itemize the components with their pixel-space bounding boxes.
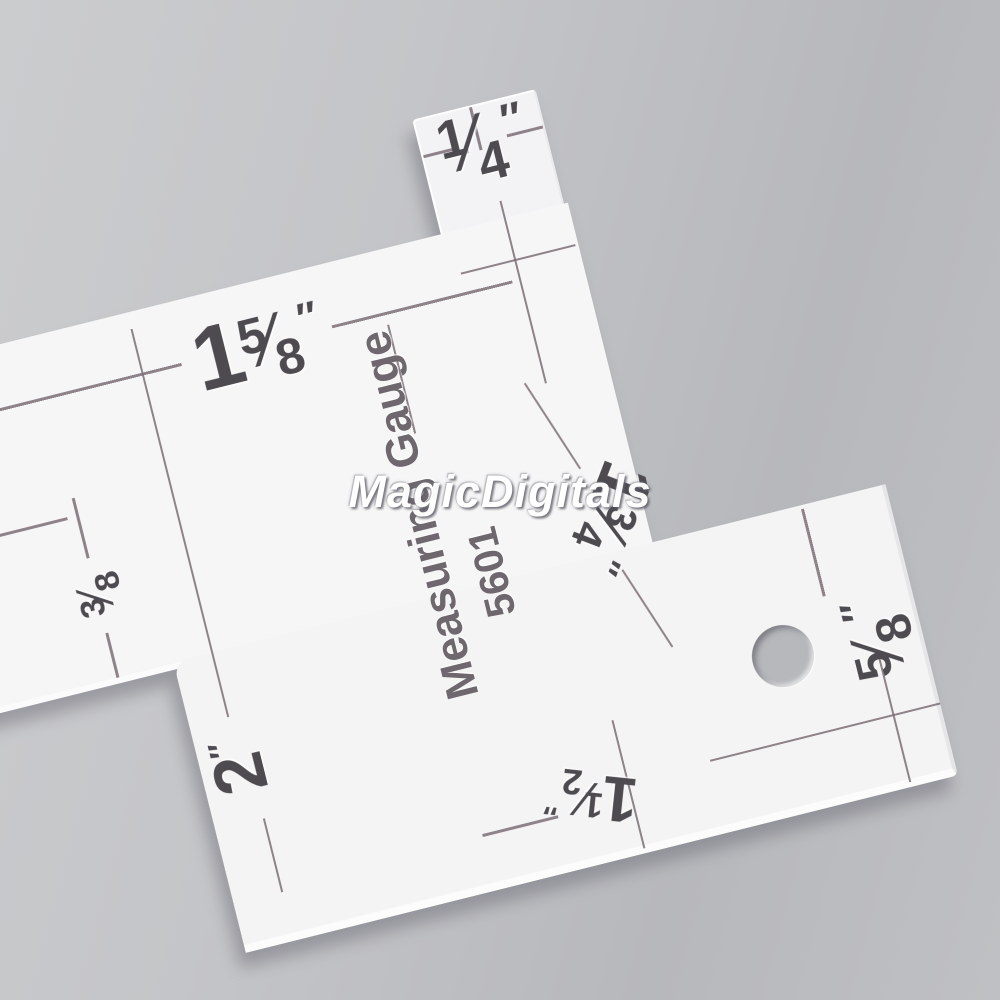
watermark-text: MagicDigitals [348, 466, 651, 518]
mark-one-and-half-inch: 11⁄2″ [542, 760, 641, 833]
inch-unit: ″ [542, 786, 559, 820]
product-photo-scene: 1⁄4″ 15⁄8″ 3⁄8 2″ 13⁄4″ 5⁄8″ 11⁄2″ Measu… [0, 0, 1000, 1000]
fraction-denominator: 2 [560, 761, 584, 803]
